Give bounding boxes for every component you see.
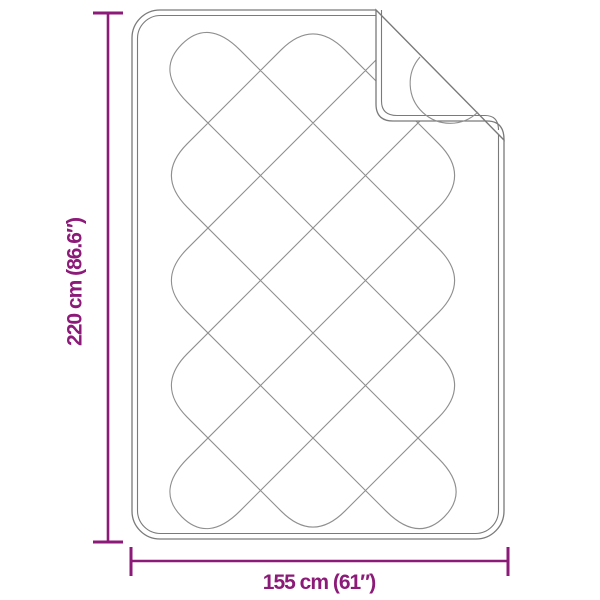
height-dimension — [93, 13, 123, 542]
folded-corner — [376, 10, 504, 140]
diagram-canvas: 220 cm (86.6″) 155 cm (61″) — [0, 0, 600, 600]
width-label: 155 cm (61″) — [263, 571, 375, 594]
blanket-dimension-diagram: 220 cm (86.6″) 155 cm (61″) — [0, 0, 600, 600]
height-label: 220 cm (86.6″) — [64, 218, 87, 346]
